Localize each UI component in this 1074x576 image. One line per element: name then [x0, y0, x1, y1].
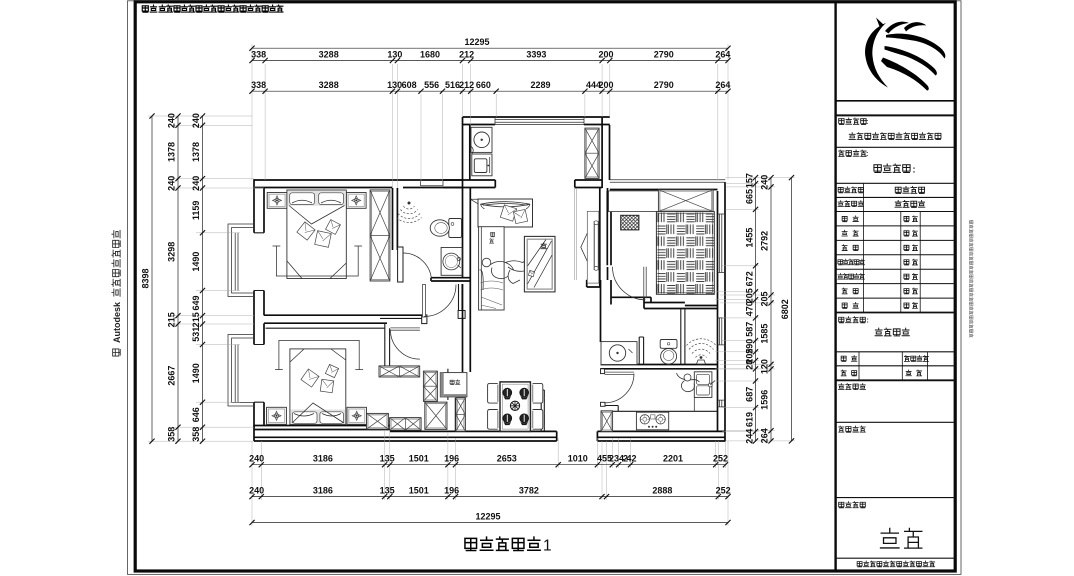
svg-text:264: 264	[715, 49, 730, 59]
svg-text:672: 672	[745, 271, 755, 286]
svg-text:2201: 2201	[663, 454, 683, 464]
svg-text:1010: 1010	[568, 454, 588, 464]
svg-text:2792: 2792	[760, 231, 770, 251]
svg-text:3288: 3288	[319, 49, 339, 59]
svg-text:42: 42	[626, 454, 636, 464]
svg-text:1159: 1159	[191, 201, 201, 221]
svg-text:1490: 1490	[191, 363, 201, 383]
svg-text:2667: 2667	[167, 366, 177, 386]
svg-text:1490: 1490	[191, 252, 201, 272]
svg-text:240: 240	[249, 486, 264, 496]
svg-text:200: 200	[598, 49, 613, 59]
svg-text:252: 252	[713, 454, 728, 464]
svg-text::: :	[913, 165, 916, 175]
svg-text:1585: 1585	[760, 324, 770, 344]
svg-text:205: 205	[745, 288, 755, 303]
svg-text:196: 196	[444, 454, 459, 464]
svg-text:240: 240	[167, 113, 177, 128]
svg-text:2790: 2790	[654, 49, 674, 59]
svg-text:608: 608	[402, 80, 417, 90]
svg-text:157: 157	[745, 173, 755, 188]
svg-text:2289: 2289	[530, 80, 550, 90]
svg-text:3782: 3782	[519, 486, 539, 496]
svg-text:1501: 1501	[409, 486, 429, 496]
svg-text:8398: 8398	[141, 268, 151, 288]
svg-text:6802: 6802	[780, 299, 790, 319]
svg-text:212: 212	[459, 49, 474, 59]
svg-text:205: 205	[760, 291, 770, 306]
svg-text:215: 215	[167, 312, 177, 327]
svg-text:649: 649	[191, 295, 201, 310]
svg-text:1596: 1596	[760, 390, 770, 410]
svg-text:3298: 3298	[167, 242, 177, 262]
svg-text:240: 240	[167, 176, 177, 191]
svg-text:687: 687	[745, 387, 755, 402]
svg-text:358: 358	[191, 427, 201, 442]
svg-text:130: 130	[387, 49, 402, 59]
svg-text:660: 660	[476, 80, 491, 90]
svg-text:470: 470	[745, 301, 755, 316]
svg-text:556: 556	[424, 80, 439, 90]
svg-text::: :	[867, 318, 869, 325]
svg-text:1378: 1378	[191, 142, 201, 162]
svg-text:240: 240	[760, 175, 770, 190]
svg-text:1378: 1378	[167, 142, 177, 162]
svg-text:240: 240	[191, 176, 201, 191]
svg-text:2653: 2653	[497, 454, 517, 464]
svg-text:516: 516	[445, 80, 460, 90]
svg-text::: :	[866, 151, 868, 158]
svg-text:200: 200	[598, 80, 613, 90]
svg-text:1455: 1455	[745, 228, 755, 248]
svg-text:135: 135	[380, 486, 395, 496]
svg-text:338: 338	[251, 49, 266, 59]
svg-text:196: 196	[444, 486, 459, 496]
svg-text:240: 240	[249, 454, 264, 464]
svg-text:3393: 3393	[526, 49, 546, 59]
svg-text:3186: 3186	[313, 486, 333, 496]
svg-text:240: 240	[191, 113, 201, 128]
svg-text:Autodesk: Autodesk	[112, 301, 122, 343]
svg-text:212: 212	[459, 80, 474, 90]
svg-text:252: 252	[716, 486, 731, 496]
svg-text:3186: 3186	[313, 454, 333, 464]
svg-text:135: 135	[380, 454, 395, 464]
svg-text:1: 1	[543, 538, 552, 555]
svg-text:12295: 12295	[475, 511, 500, 521]
svg-text:264: 264	[715, 80, 730, 90]
svg-text:531: 531	[191, 327, 201, 342]
svg-text:587: 587	[745, 322, 755, 337]
svg-text:338: 338	[251, 80, 266, 90]
svg-text:12295: 12295	[464, 37, 489, 47]
svg-text:358: 358	[167, 427, 177, 442]
svg-text::: :	[866, 119, 868, 126]
svg-text:244: 244	[745, 429, 755, 444]
svg-text:234: 234	[609, 454, 624, 464]
svg-text:28: 28	[745, 360, 755, 370]
svg-text:215: 215	[191, 312, 201, 327]
svg-text:3288: 3288	[319, 80, 339, 90]
svg-text:2790: 2790	[654, 80, 674, 90]
svg-text:2888: 2888	[652, 486, 672, 496]
svg-text:1501: 1501	[409, 454, 429, 464]
svg-text:646: 646	[191, 407, 201, 422]
svg-text:264: 264	[760, 428, 770, 443]
svg-text:665: 665	[745, 189, 755, 204]
svg-text:120: 120	[760, 359, 770, 374]
svg-text:619: 619	[745, 412, 755, 427]
svg-text:1680: 1680	[420, 49, 440, 59]
svg-text:130: 130	[387, 80, 402, 90]
